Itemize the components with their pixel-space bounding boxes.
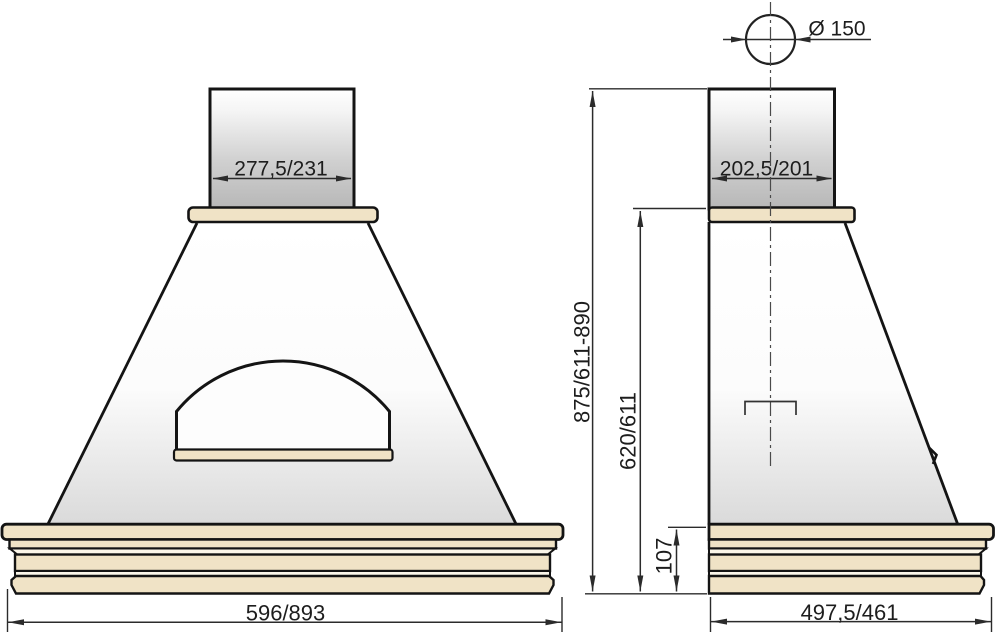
svg-text:596/893: 596/893 — [246, 601, 326, 626]
svg-text:277,5/231: 277,5/231 — [234, 158, 327, 181]
svg-text:497,5/461: 497,5/461 — [801, 600, 899, 625]
svg-text:620/611: 620/611 — [616, 392, 641, 470]
svg-text:875/611-890: 875/611-890 — [570, 301, 595, 423]
svg-text:202,5/201: 202,5/201 — [720, 158, 813, 181]
svg-text:Ø 150: Ø 150 — [808, 18, 865, 41]
svg-text:107: 107 — [652, 538, 677, 575]
